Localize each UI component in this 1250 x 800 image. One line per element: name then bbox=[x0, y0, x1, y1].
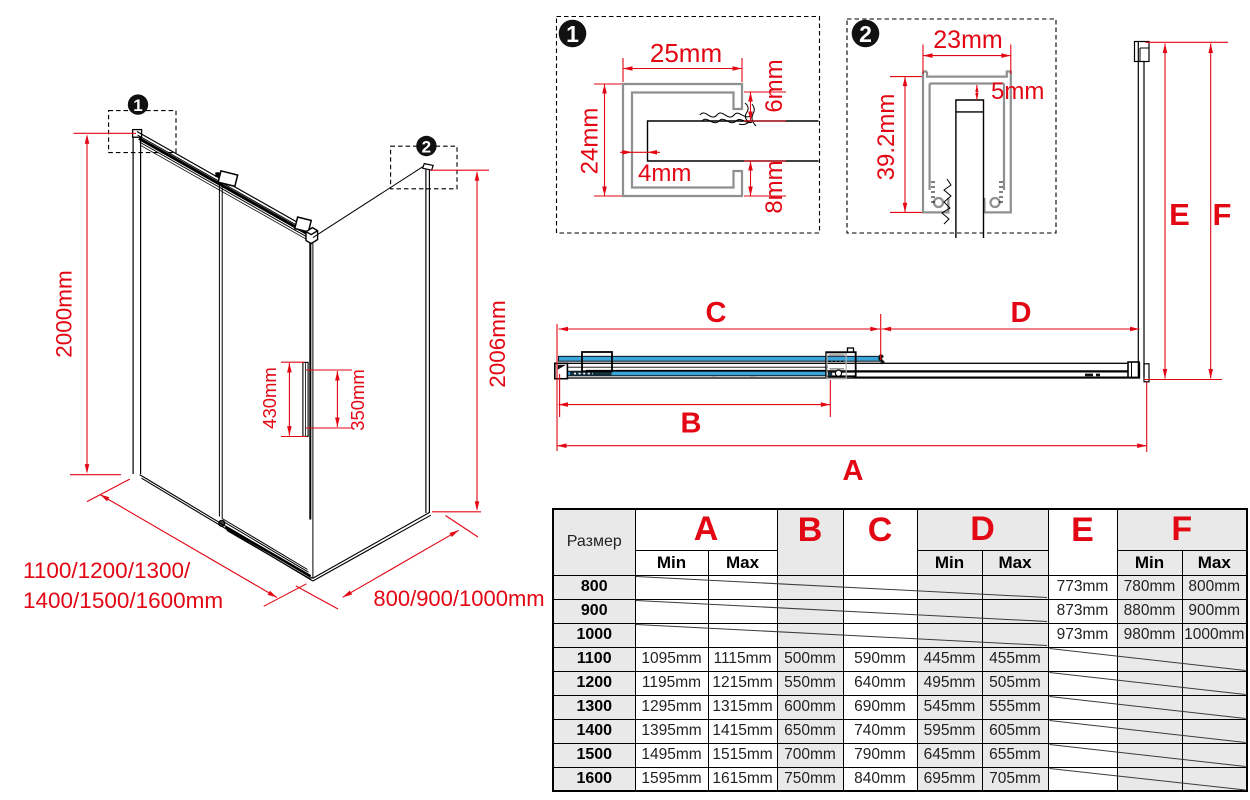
svg-text:B: B bbox=[681, 408, 702, 440]
svg-text:39.2mm: 39.2mm bbox=[873, 94, 900, 181]
svg-text:A: A bbox=[843, 455, 864, 487]
svg-text:23mm: 23mm bbox=[933, 26, 1002, 54]
svg-text:430mm: 430mm bbox=[259, 367, 280, 429]
svg-text:2000mm: 2000mm bbox=[52, 270, 77, 358]
svg-text:4mm: 4mm bbox=[638, 160, 691, 187]
svg-text:350mm: 350mm bbox=[347, 369, 368, 431]
svg-text:2: 2 bbox=[859, 21, 872, 47]
svg-text:2006mm: 2006mm bbox=[485, 300, 510, 388]
svg-text:1400/1500/1600mm: 1400/1500/1600mm bbox=[23, 588, 223, 613]
svg-text:E: E bbox=[1169, 197, 1190, 232]
svg-text:5mm: 5mm bbox=[991, 78, 1044, 105]
svg-text:25mm: 25mm bbox=[650, 38, 722, 68]
svg-text:1: 1 bbox=[133, 96, 142, 115]
svg-text:24mm: 24mm bbox=[577, 108, 604, 175]
svg-text:6mm: 6mm bbox=[761, 59, 788, 112]
svg-text:2: 2 bbox=[422, 137, 431, 156]
svg-text:8mm: 8mm bbox=[761, 160, 788, 213]
svg-text:800/900/1000mm: 800/900/1000mm bbox=[373, 586, 544, 611]
svg-text:C: C bbox=[706, 297, 727, 329]
svg-text:1100/1200/1300/: 1100/1200/1300/ bbox=[23, 558, 191, 583]
svg-text:1: 1 bbox=[566, 21, 579, 47]
svg-text:F: F bbox=[1213, 197, 1232, 232]
svg-text:D: D bbox=[1011, 297, 1032, 329]
